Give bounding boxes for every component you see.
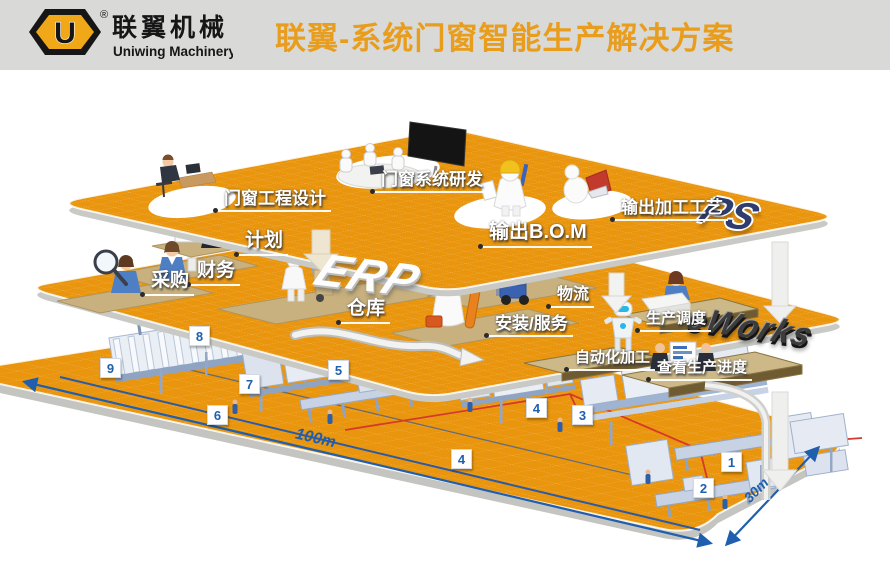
station-label-auto: 自动化加工 bbox=[566, 349, 655, 371]
page-title: 联翼-系统门窗智能生产解决方案 bbox=[275, 13, 734, 58]
diagram-stage: PS ERP eWorks 门窗工程设计 门窗系统研发 输出B.O.M 输出加工… bbox=[0, 70, 890, 567]
machine-marker-5: 5 bbox=[328, 360, 349, 380]
station-label-finance: 财务 bbox=[188, 259, 240, 286]
logo-text-en: Uniwing Machinery bbox=[113, 44, 233, 59]
registered-mark: ® bbox=[100, 9, 108, 21]
uniwing-hexagon-icon: U bbox=[29, 9, 101, 55]
station-label-craft: 输出加工工艺 bbox=[612, 197, 728, 221]
machine-marker-9: 9 bbox=[100, 358, 121, 378]
station-label-install: 安装/服务 bbox=[486, 313, 573, 337]
station-label-design: 门窗工程设计 bbox=[215, 188, 331, 212]
machine-marker-2: 2 bbox=[693, 478, 714, 498]
station-label-dispatch: 生产调度 bbox=[637, 310, 711, 332]
machine-marker-1: 1 bbox=[721, 452, 742, 472]
station-label-bom: 输出B.O.M bbox=[480, 220, 592, 248]
company-logo: U ® 联翼机械 Uniwing Machinery bbox=[28, 6, 233, 64]
machine-marker-3: 3 bbox=[572, 405, 593, 425]
logo-text-cn: 联翼机械 bbox=[112, 14, 228, 42]
header-bar: U ® 联翼机械 Uniwing Machinery 联翼-系统门窗智能生产解决… bbox=[0, 0, 890, 70]
machine-marker-4a: 4 bbox=[526, 398, 547, 418]
page: U ® 联翼机械 Uniwing Machinery 联翼-系统门窗智能生产解决… bbox=[0, 0, 890, 567]
station-label-rd: 门窗系统研发 bbox=[372, 169, 488, 193]
machine-marker-7: 7 bbox=[239, 374, 260, 394]
machine-marker-8: 8 bbox=[189, 326, 210, 346]
station-label-logistics: 物流 bbox=[548, 285, 594, 308]
station-label-plan: 计划 bbox=[236, 229, 288, 256]
machine-marker-4b: 4 bbox=[451, 449, 472, 469]
station-label-warehouse: 仓库 bbox=[338, 297, 390, 324]
machine-marker-6: 6 bbox=[207, 405, 228, 425]
station-label-purchase: 采购 bbox=[142, 269, 194, 296]
station-label-progress: 查看生产进度 bbox=[648, 359, 752, 381]
svg-text:U: U bbox=[54, 17, 76, 50]
